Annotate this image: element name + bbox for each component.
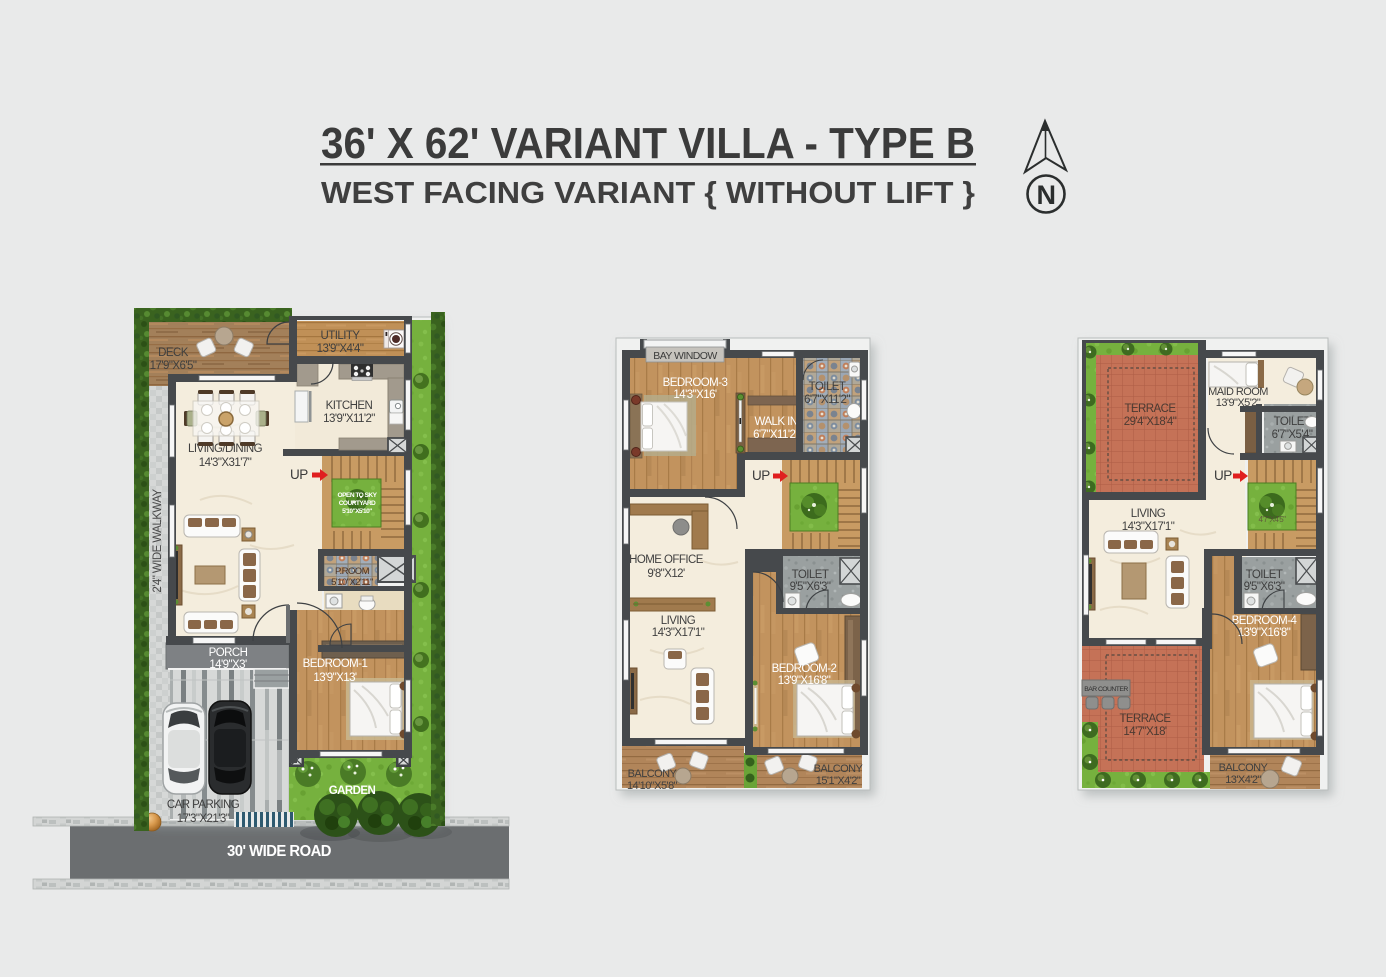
svg-text:9'5"X6'3": 9'5"X6'3" [790,581,831,593]
svg-text:2'4" WIDE WALKWAY: 2'4" WIDE WALKWAY [152,489,164,593]
svg-text:9'8"X12': 9'8"X12' [647,568,685,580]
svg-text:TOILET: TOILET [809,381,846,393]
svg-text:14'3"X17'1": 14'3"X17'1" [652,627,705,639]
svg-text:13'X4'2": 13'X4'2" [1225,774,1261,786]
svg-text:TOILET: TOILET [792,569,829,581]
svg-text:BEDROOM-4: BEDROOM-4 [1232,615,1298,627]
svg-text:N: N [1037,180,1056,210]
svg-text:6'7"X11'2": 6'7"X11'2" [804,394,850,406]
svg-text:9'5"X6'3": 9'5"X6'3" [1244,581,1285,593]
svg-text:5'10"X5'10": 5'10"X5'10" [342,508,372,515]
svg-text:13'9"X16'8": 13'9"X16'8" [1238,627,1291,639]
svg-text:CAR PARKING: CAR PARKING [167,799,240,811]
svg-text:BALCONY: BALCONY [1219,762,1269,774]
svg-text:14'3"X16': 14'3"X16' [673,389,717,401]
svg-text:4'7"X4'5": 4'7"X4'5" [1259,515,1287,524]
svg-text:KITCHEN: KITCHEN [326,400,373,412]
svg-text:BEDROOM-2: BEDROOM-2 [772,663,837,675]
svg-text:BAY WINDOW: BAY WINDOW [653,350,717,362]
svg-text:LIVING: LIVING [1131,508,1166,520]
svg-text:BEDROOM-1: BEDROOM-1 [303,658,368,670]
svg-text:14'9"X3': 14'9"X3' [209,659,247,671]
svg-text:GARDEN: GARDEN [329,785,376,797]
svg-text:13'9"X4'4": 13'9"X4'4" [317,343,364,355]
svg-text:30' WIDE ROAD: 30' WIDE ROAD [227,843,331,860]
svg-text:UTILITY: UTILITY [321,330,361,342]
svg-text:14'3"X31'7": 14'3"X31'7" [199,457,252,469]
svg-text:WEST FACING VARIANT { WITHOUT: WEST FACING VARIANT { WITHOUT LIFT } [321,175,975,210]
svg-text:TERRACE: TERRACE [1124,403,1176,415]
svg-text:BALCONY: BALCONY [814,763,864,775]
svg-text:COURTYARD: COURTYARD [339,500,376,507]
svg-text:WALK IN: WALK IN [754,416,797,428]
svg-text:LIVING: LIVING [661,615,696,627]
svg-text:13'9"X16'8": 13'9"X16'8" [778,675,831,687]
svg-text:BALCONY: BALCONY [628,768,678,780]
svg-text:13'9"X11'2": 13'9"X11'2" [323,413,375,425]
svg-text:UP: UP [752,468,770,483]
svg-text:TOILET: TOILET [1246,569,1283,581]
svg-text:OPEN TO SKY: OPEN TO SKY [338,492,378,499]
svg-text:17'3"X21'3": 17'3"X21'3" [177,813,230,825]
svg-text:6'7"X11'2": 6'7"X11'2" [753,429,799,441]
svg-text:DECK: DECK [158,347,189,359]
svg-text:BEDROOM-3: BEDROOM-3 [663,377,728,389]
svg-text:BAR COUNTER: BAR COUNTER [1084,686,1128,693]
svg-text:PORCH: PORCH [209,647,248,659]
svg-text:UP: UP [290,467,308,482]
svg-text:14'7"X18': 14'7"X18' [1123,726,1167,738]
svg-text:P.ROOM: P.ROOM [335,566,370,577]
svg-text:HOME OFFICE: HOME OFFICE [629,554,704,566]
svg-text:29'4"X18'4": 29'4"X18'4" [1124,416,1177,428]
svg-text:36' X 62' VARIANT VILLA - TYPE: 36' X 62' VARIANT VILLA - TYPE B [321,119,975,168]
svg-text:13'9"X13': 13'9"X13' [313,672,357,684]
svg-text:17'9"X6'5": 17'9"X6'5" [150,360,197,372]
svg-text:TERRACE: TERRACE [1119,713,1171,725]
svg-text:14'10"X5'8": 14'10"X5'8" [627,780,678,792]
svg-text:15'1"X4'2": 15'1"X4'2" [816,775,861,787]
svg-text:UP: UP [1214,468,1232,483]
